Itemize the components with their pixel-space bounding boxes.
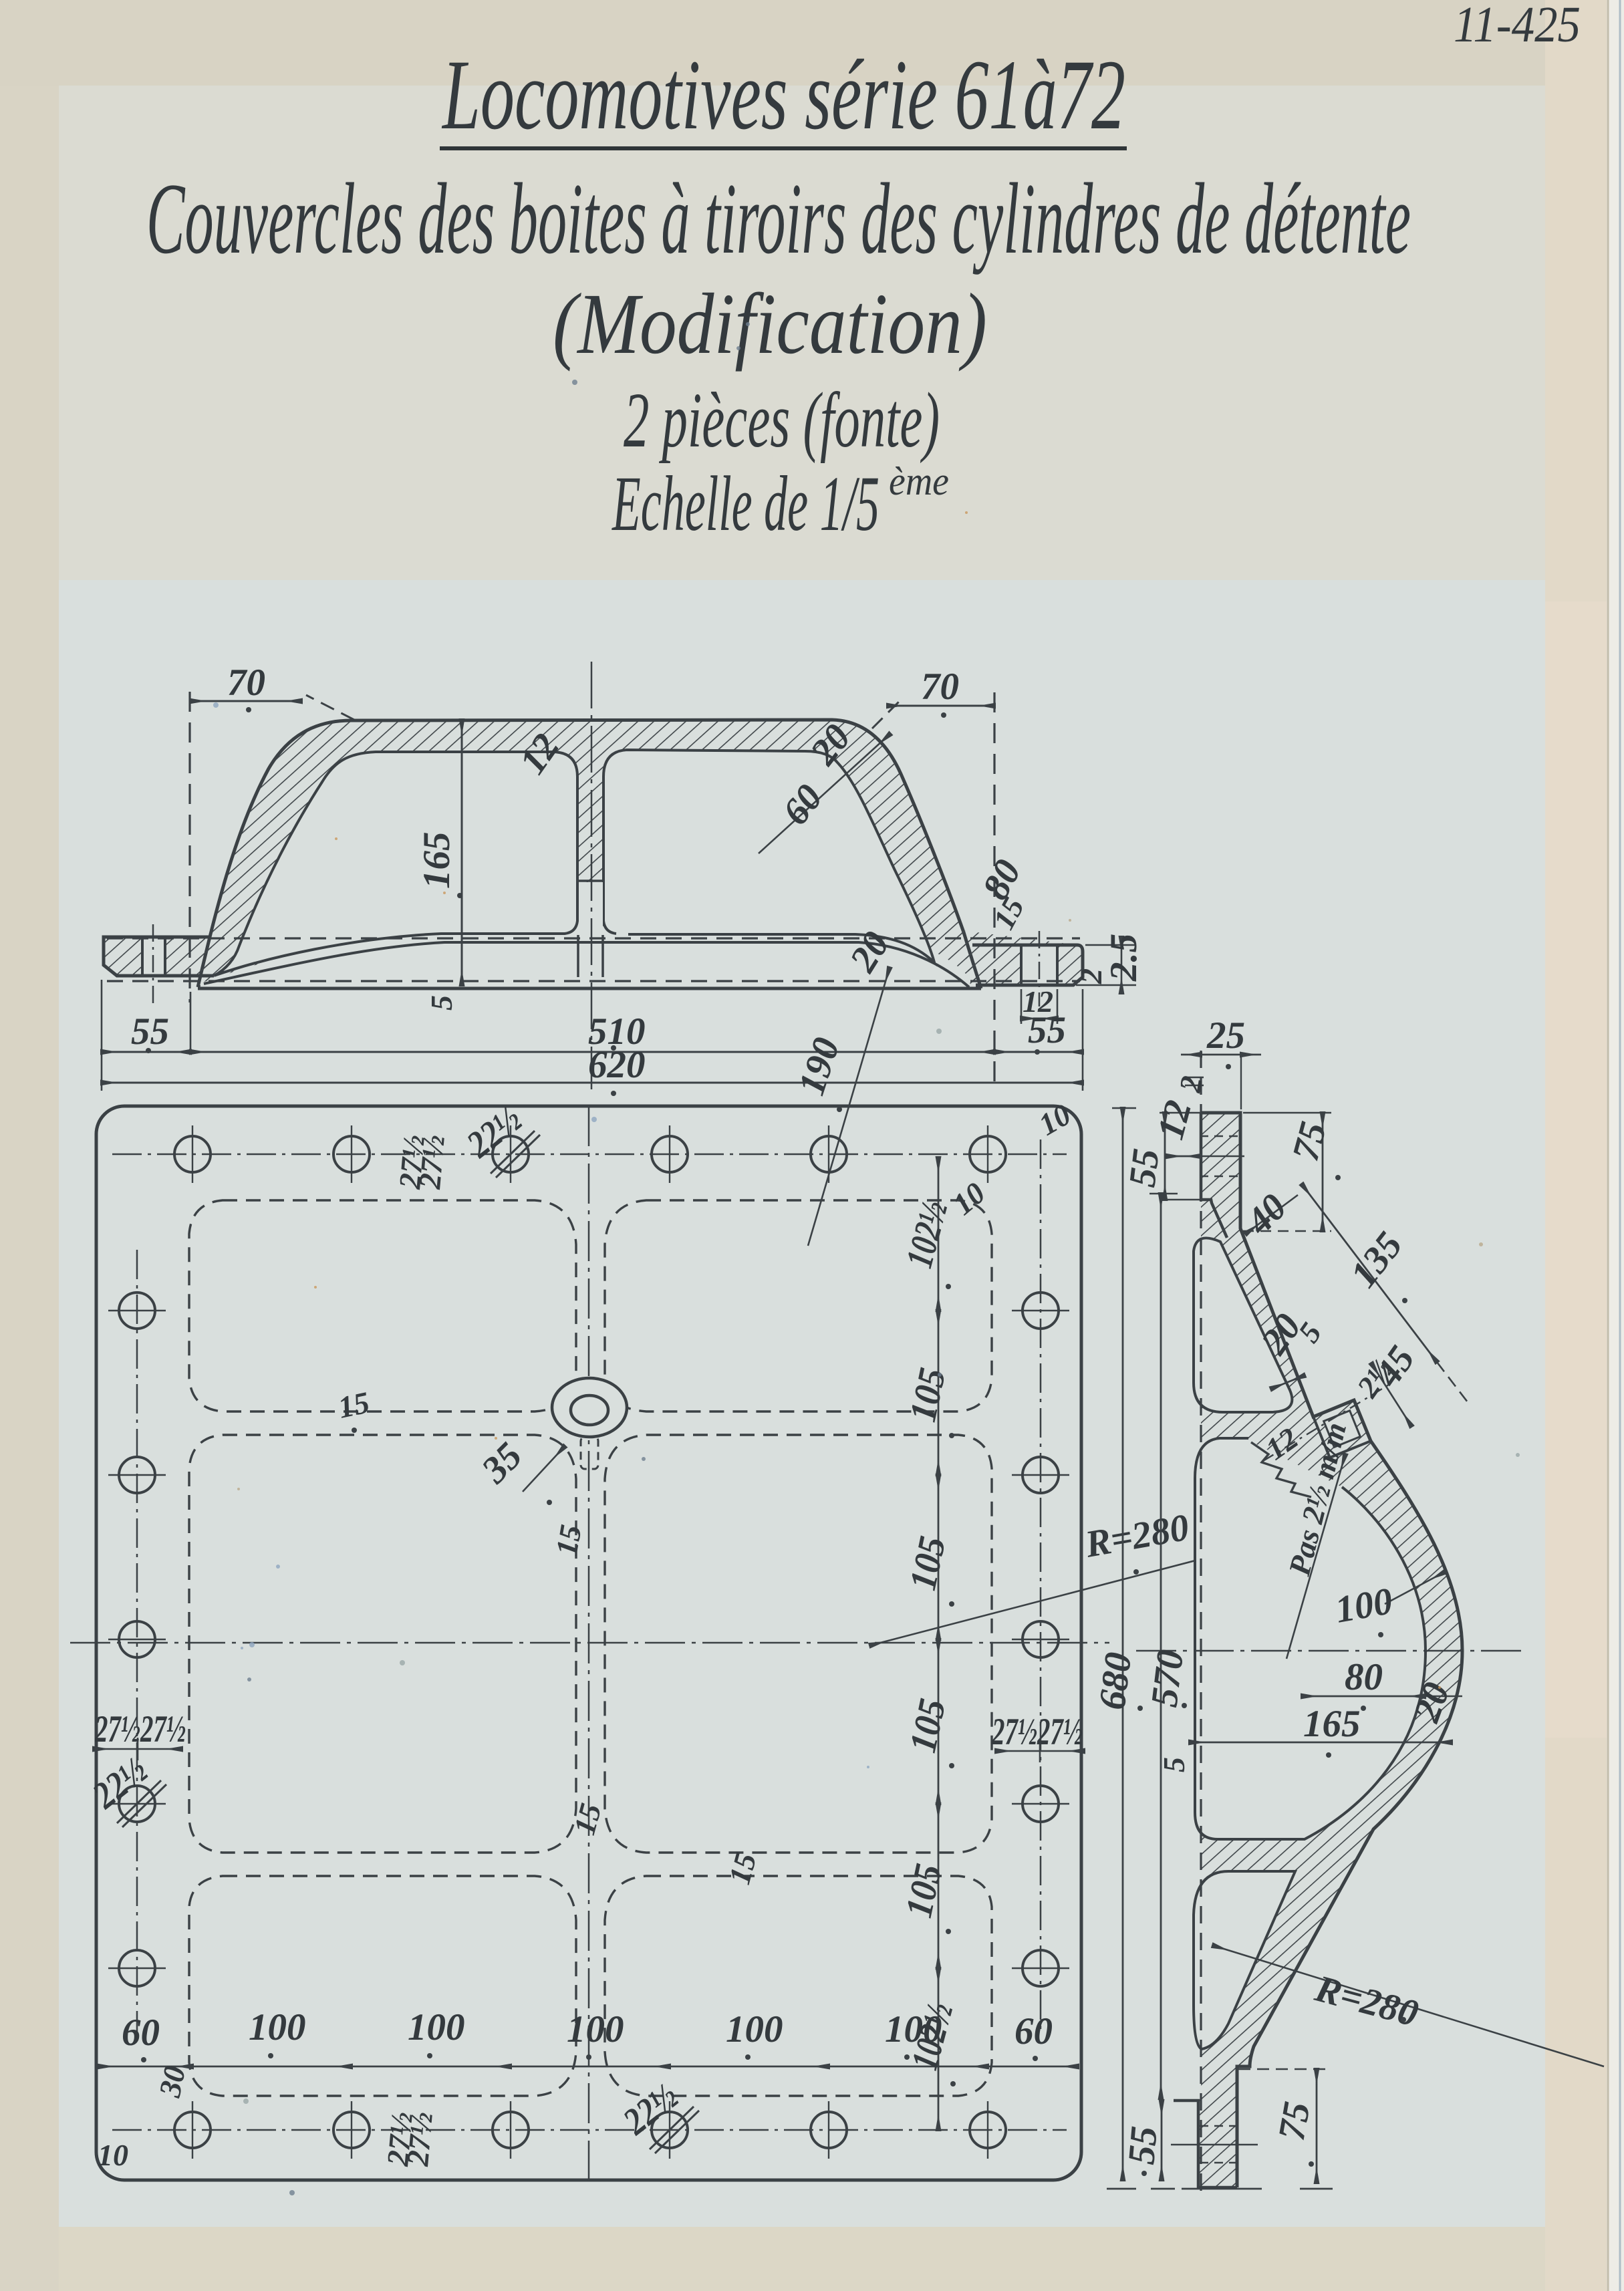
- svg-text:620: 620: [588, 1044, 646, 1086]
- svg-text:75: 75: [1270, 2099, 1319, 2143]
- svg-text:2 pièces (fonte): 2 pièces (fonte): [624, 376, 940, 464]
- svg-text:27½: 27½: [400, 2111, 439, 2168]
- svg-text:70: 70: [227, 662, 265, 704]
- svg-text:5: 5: [1157, 1757, 1191, 1772]
- svg-text:25: 25: [1206, 1015, 1245, 1057]
- svg-text:5: 5: [424, 995, 458, 1010]
- svg-text:15: 15: [549, 1522, 588, 1559]
- svg-text:55: 55: [131, 1010, 169, 1053]
- svg-text:80: 80: [1345, 1656, 1383, 1698]
- svg-text:Echelle de 1/5: Echelle de 1/5: [612, 460, 879, 547]
- svg-text:27½27½: 27½27½: [991, 1711, 1083, 1753]
- svg-text:60: 60: [122, 2012, 160, 2054]
- svg-text:Couvercles des boites à tiroir: Couvercles des boites à tiroirs des cyli…: [146, 162, 1411, 275]
- svg-text:165: 165: [1303, 1703, 1361, 1745]
- svg-text:100: 100: [408, 2006, 465, 2048]
- svg-text:55: 55: [1120, 2125, 1166, 2166]
- svg-text:100: 100: [567, 2008, 624, 2050]
- svg-text:70: 70: [921, 666, 959, 708]
- svg-text:570: 570: [1143, 1647, 1192, 1710]
- svg-text:60: 60: [1014, 2010, 1053, 2052]
- svg-text:2: 2: [1074, 968, 1108, 984]
- svg-text:27½: 27½: [412, 1133, 451, 1191]
- svg-text:(Modification): (Modification): [553, 276, 987, 372]
- svg-text:11-425: 11-425: [1454, 0, 1581, 53]
- svg-text:10: 10: [98, 2138, 128, 2172]
- svg-text:100: 100: [249, 2006, 306, 2048]
- svg-text:165: 165: [416, 832, 458, 890]
- svg-text:2.5: 2.5: [1103, 934, 1145, 982]
- svg-text:680: 680: [1091, 1650, 1139, 1712]
- svg-text:55: 55: [1028, 1009, 1066, 1051]
- svg-text:55: 55: [1121, 1146, 1167, 1189]
- svg-text:100: 100: [726, 2008, 783, 2050]
- svg-text:ème: ème: [889, 459, 949, 503]
- svg-text:27½27½: 27½27½: [94, 1708, 186, 1750]
- svg-text:Locomotives série 61à72: Locomotives série 61à72: [442, 39, 1125, 150]
- svg-text:100: 100: [885, 2008, 942, 2050]
